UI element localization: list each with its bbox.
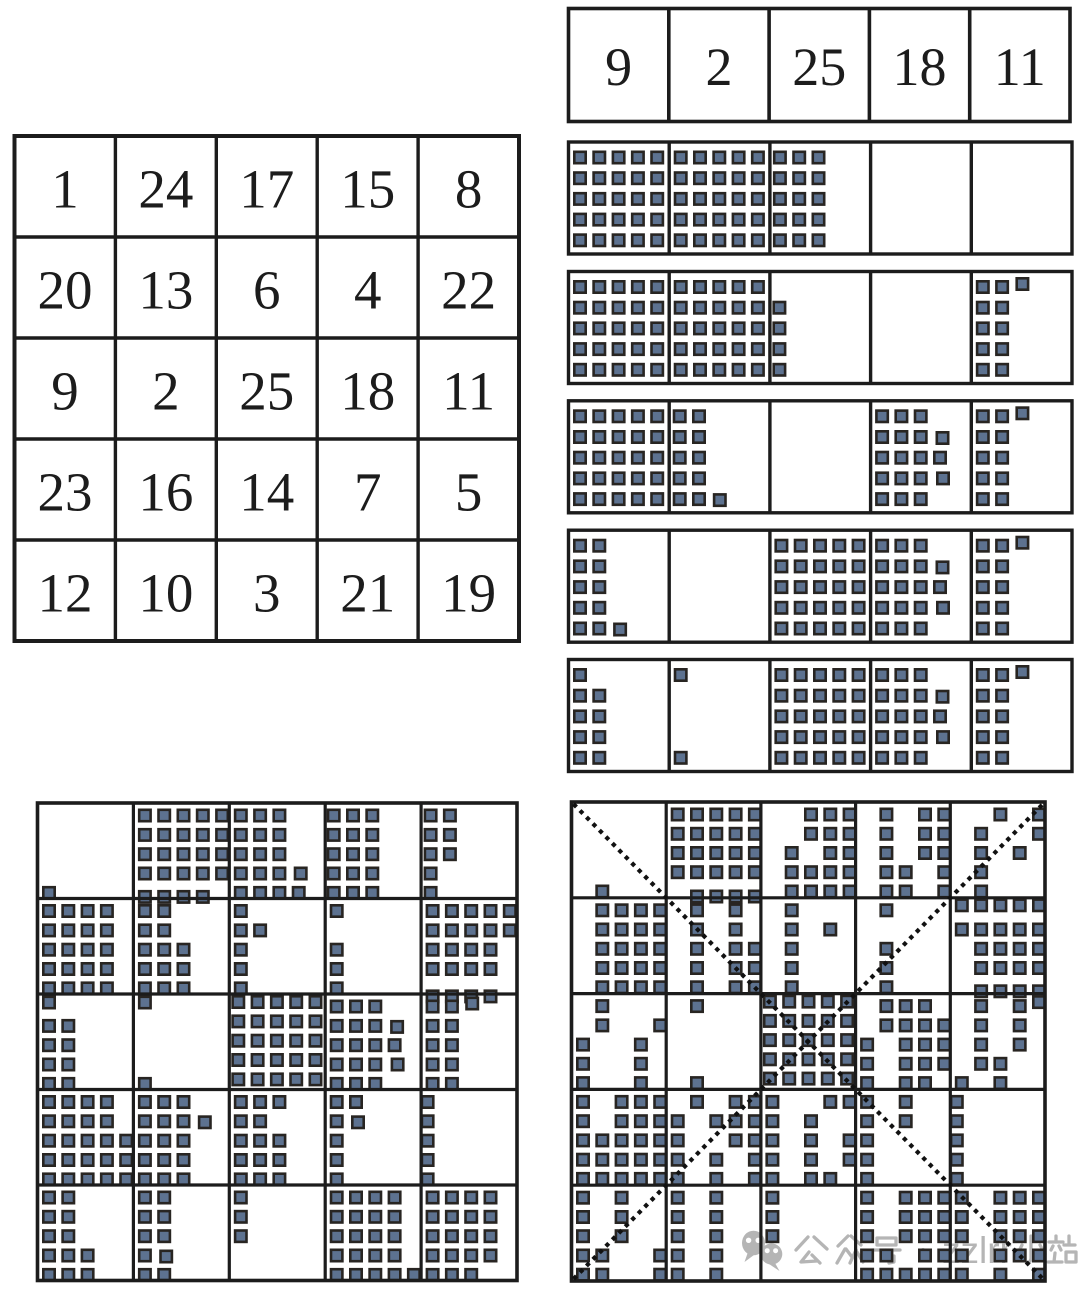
svg-text:18: 18 bbox=[893, 37, 947, 97]
svg-text:14: 14 bbox=[239, 462, 294, 523]
svg-text:24: 24 bbox=[138, 159, 193, 220]
svg-text:6: 6 bbox=[253, 260, 281, 321]
svg-text:4: 4 bbox=[354, 260, 382, 321]
svg-text:16: 16 bbox=[138, 462, 193, 523]
svg-text:25: 25 bbox=[239, 361, 294, 422]
svg-text:8: 8 bbox=[455, 159, 483, 220]
svg-text:3: 3 bbox=[253, 563, 281, 624]
svg-text:15: 15 bbox=[340, 159, 395, 220]
svg-text:22: 22 bbox=[441, 260, 496, 321]
svg-text:13: 13 bbox=[138, 260, 193, 321]
svg-text:21: 21 bbox=[340, 563, 395, 624]
svg-text:18: 18 bbox=[340, 361, 395, 422]
svg-text:20: 20 bbox=[38, 260, 93, 321]
svg-text:10: 10 bbox=[138, 563, 193, 624]
svg-text:23: 23 bbox=[38, 462, 93, 523]
svg-text:7: 7 bbox=[354, 462, 382, 523]
svg-text:12: 12 bbox=[38, 563, 93, 624]
svg-text:5: 5 bbox=[455, 462, 483, 523]
svg-text:2: 2 bbox=[706, 37, 733, 97]
svg-text:17: 17 bbox=[239, 159, 294, 220]
svg-text:9: 9 bbox=[605, 37, 632, 97]
svg-text:11: 11 bbox=[994, 37, 1046, 97]
svg-text:1: 1 bbox=[51, 159, 79, 220]
svg-text:25: 25 bbox=[792, 37, 846, 97]
svg-text:2: 2 bbox=[152, 361, 180, 422]
svg-text:9: 9 bbox=[51, 361, 79, 422]
svg-text:11: 11 bbox=[442, 361, 495, 422]
svg-text:19: 19 bbox=[441, 563, 496, 624]
